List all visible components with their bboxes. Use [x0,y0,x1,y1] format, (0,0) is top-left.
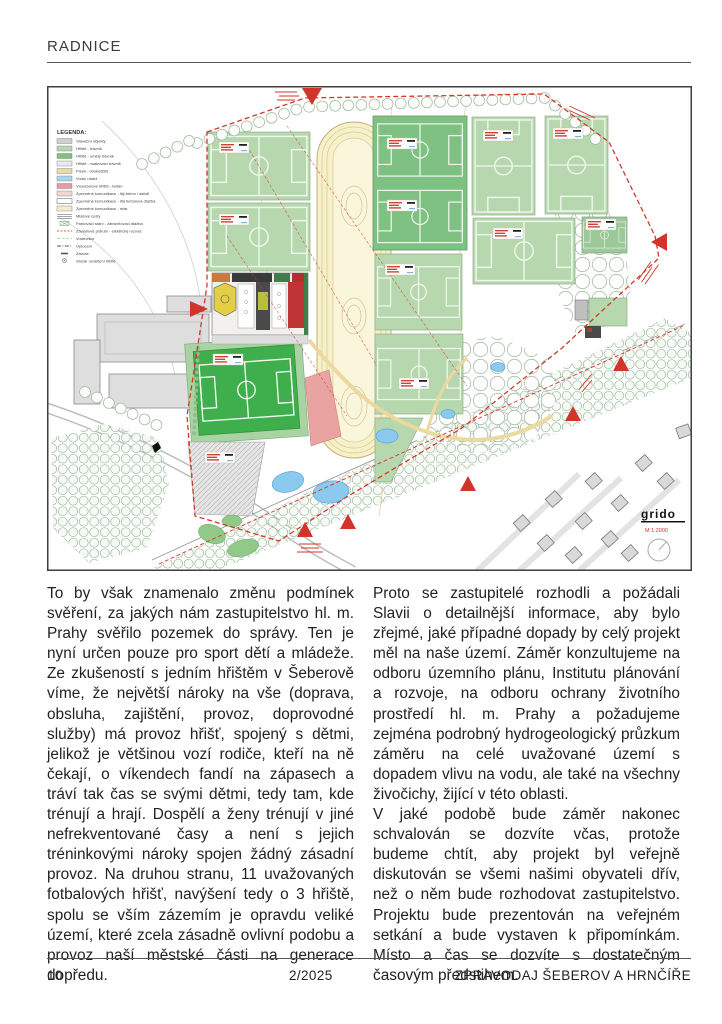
issue-number: 2/2025 [167,968,455,983]
svg-text:Stožár osvětlení hřiště: Stožár osvětlení hřiště [76,259,116,264]
svg-text:Závora: Závora [76,251,89,256]
studio-logo: grido [641,507,676,521]
svg-text:Víceúčelové hřiště - tartan: Víceúčelové hřiště - tartan [76,184,122,189]
svg-text:Zpevněné komunikace - litý bet: Zpevněné komunikace - litý beton / asfal… [76,191,150,196]
svg-text:Hřiště - trávník: Hřiště - trávník [76,146,102,151]
north-arrow-icon [648,539,670,561]
article-column-right: Proto se zastupitelé rozhodli a požádali… [373,584,680,986]
svg-text:Mlatové cesty: Mlatové cesty [76,214,100,219]
legend-title: LEGENDA: [57,130,86,136]
article-body: To by však znamenalo změnu podmínek svěř… [47,584,680,986]
svg-text:Hřiště - vsakovací trávník: Hřiště - vsakovací trávník [76,161,121,166]
paragraph: To by však znamenalo změnu podmínek svěř… [47,584,354,986]
svg-text:Vodní nádrž: Vodní nádrž [76,176,97,181]
site-plan-figure: LEGENDA: Stavební objekty Hřiště - trávn… [47,86,692,571]
newsletter-title: ZPRAVODAJ ŠEBEROV A HRNČÍŘE [455,968,691,983]
svg-text:Písek - doskočiště: Písek - doskočiště [76,169,109,174]
article-column-left: To by však znamenalo změnu podmínek svěř… [47,584,354,986]
page-footer: 10 2/2025 ZPRAVODAJ ŠEBEROV A HRNČÍŘE [47,958,691,983]
svg-text:Hřiště - umělý trávník: Hřiště - umělý trávník [76,154,114,159]
site-plan-map: LEGENDA: Stavební objekty Hřiště - trávn… [47,86,692,571]
newsletter-page: RADNICE [0,0,722,1024]
section-title: RADNICE [47,38,122,55]
clubhouse-complex [212,273,308,344]
svg-text:Parkovací stání - zatravňovací: Parkovací stání - zatravňovací dlažba [76,221,143,226]
svg-text:Oplocení: Oplocení [76,244,93,249]
svg-text:Závlahové potrubí - elektrický: Závlahové potrubí - elektrický rozvod [76,229,141,234]
section-header: RADNICE [47,38,691,63]
svg-text:Stavební objekty: Stavební objekty [76,139,106,144]
map-legend: LEGENDA: Stavební objekty Hřiště - trávn… [57,130,156,264]
map-scale: M 1:2000 [645,528,668,534]
page-number: 10 [47,968,167,983]
svg-text:Zpevněné komunikace - mlat: Zpevněné komunikace - mlat [76,206,128,211]
paragraph: Proto se zastupitelé rozhodli a požádali… [373,584,680,805]
bright-pitch [185,336,309,444]
svg-text:Zpevněné komunikace - litá bet: Zpevněné komunikace - litá betonová dlaž… [76,199,156,204]
map-branding: grido M 1:2000 [641,507,685,561]
svg-text:Vrstevnice: Vrstevnice [76,236,95,241]
